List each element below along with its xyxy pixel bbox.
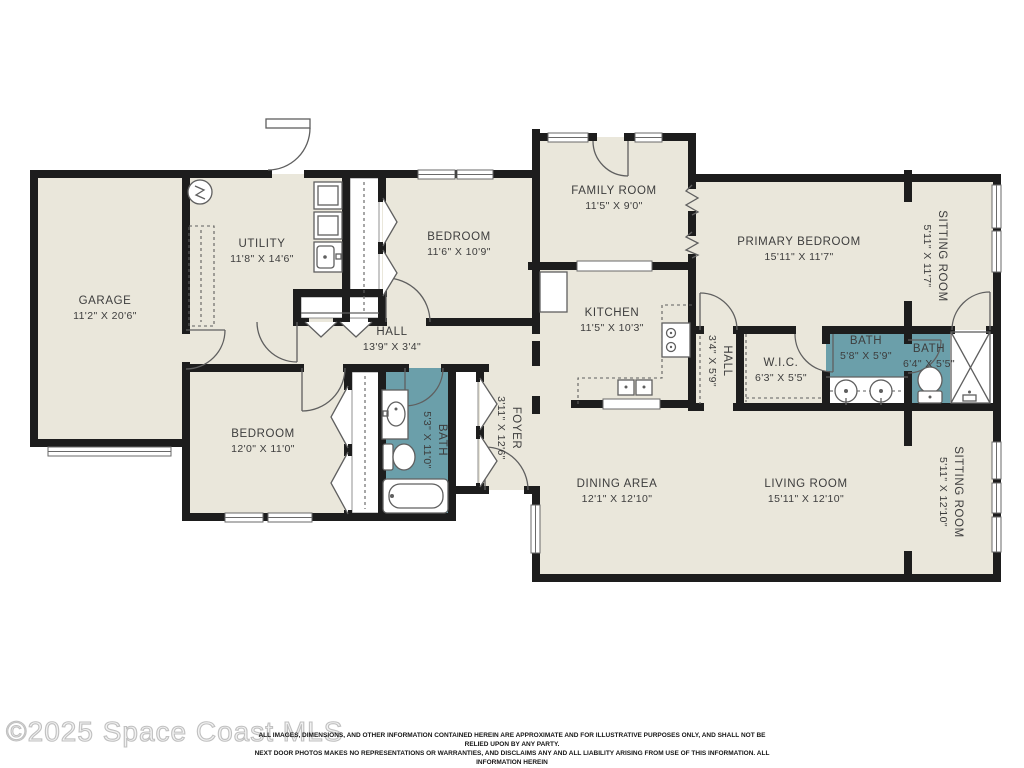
svg-text:3'11" X 12'6": 3'11" X 12'6"	[495, 396, 507, 460]
svg-text:11'5" X 10'3": 11'5" X 10'3"	[580, 322, 644, 334]
svg-text:W.I.C.: W.I.C.	[764, 357, 799, 369]
disclaimer-line-1: ALL IMAGES, DIMENSIONS, AND OTHER INFORM…	[250, 731, 774, 749]
svg-text:HALL: HALL	[376, 326, 407, 338]
disclaimer-line-2: NEXT DOOR PHOTOS MAKES NO REPRESENTATION…	[250, 749, 774, 767]
svg-text:BEDROOM: BEDROOM	[231, 428, 295, 440]
svg-text:5'11" X 11'7": 5'11" X 11'7"	[921, 225, 933, 288]
svg-text:11'6" X 10'9": 11'6" X 10'9"	[427, 246, 491, 258]
cased-opening-family-kitchen	[577, 261, 652, 271]
svg-text:GARAGE: GARAGE	[79, 295, 132, 307]
svg-text:BEDROOM: BEDROOM	[427, 231, 491, 243]
svg-text:5'3" X 11'0": 5'3" X 11'0"	[421, 411, 433, 469]
svg-text:11'5" X 9'0": 11'5" X 9'0"	[585, 200, 643, 212]
svg-text:11'8" X 14'6": 11'8" X 14'6"	[230, 253, 294, 265]
svg-text:6'3" X 5'5": 6'3" X 5'5"	[755, 372, 807, 384]
svg-text:UTILITY: UTILITY	[238, 238, 285, 250]
toilet-icon-bath-2	[918, 367, 942, 403]
svg-text:BATH: BATH	[436, 424, 448, 456]
stove-icon	[662, 323, 690, 357]
bathtub-icon	[383, 479, 448, 513]
svg-text:3'4" X 5'9": 3'4" X 5'9"	[706, 335, 718, 387]
svg-text:15'11" X 12'10": 15'11" X 12'10"	[768, 493, 844, 505]
floorplan-page: GARAGE11'2" X 20'6"UTILITY11'8" X 14'6"B…	[0, 0, 1024, 768]
floorplan-canvas: GARAGE11'2" X 20'6"UTILITY11'8" X 14'6"B…	[0, 0, 1024, 768]
svg-text:13'9" X 3'4": 13'9" X 3'4"	[363, 341, 421, 353]
svg-text:11'2" X 20'6": 11'2" X 20'6"	[73, 310, 137, 322]
svg-text:LIVING ROOM: LIVING ROOM	[764, 478, 847, 490]
toilet-icon-bath-hall	[383, 444, 415, 470]
door-utility-exterior	[266, 119, 310, 170]
svg-text:FOYER: FOYER	[510, 407, 522, 450]
svg-text:FAMILY ROOM: FAMILY ROOM	[571, 185, 656, 197]
svg-text:15'11" X 11'7": 15'11" X 11'7"	[764, 251, 833, 263]
vanity-icon-bath-hall	[382, 390, 408, 439]
svg-text:12'1" X 12'10": 12'1" X 12'10"	[582, 493, 653, 505]
svg-text:HALL: HALL	[721, 345, 733, 376]
svg-text:12'0" X 11'0": 12'0" X 11'0"	[231, 443, 295, 455]
svg-text:5'11" X 12'10": 5'11" X 12'10"	[937, 457, 949, 527]
svg-text:SITTING ROOM: SITTING ROOM	[936, 210, 948, 302]
room-garage	[34, 174, 186, 443]
refrigerator-icon	[540, 272, 567, 312]
svg-text:BATH: BATH	[850, 335, 882, 347]
disclaimer: ALL IMAGES, DIMENSIONS, AND OTHER INFORM…	[250, 731, 774, 768]
svg-text:DINING AREA: DINING AREA	[577, 478, 658, 490]
svg-text:SITTING ROOM: SITTING ROOM	[952, 446, 964, 538]
svg-text:PRIMARY BEDROOM: PRIMARY BEDROOM	[737, 236, 861, 248]
closet-hall-pantry	[301, 297, 379, 318]
svg-text:6'4" X 5'5": 6'4" X 5'5"	[903, 358, 955, 370]
svg-text:5'8" X 5'9": 5'8" X 5'9"	[840, 350, 892, 362]
svg-text:KITCHEN: KITCHEN	[585, 307, 640, 319]
cased-opening-kitchen-dining	[603, 399, 660, 409]
svg-text:BATH: BATH	[913, 343, 945, 355]
